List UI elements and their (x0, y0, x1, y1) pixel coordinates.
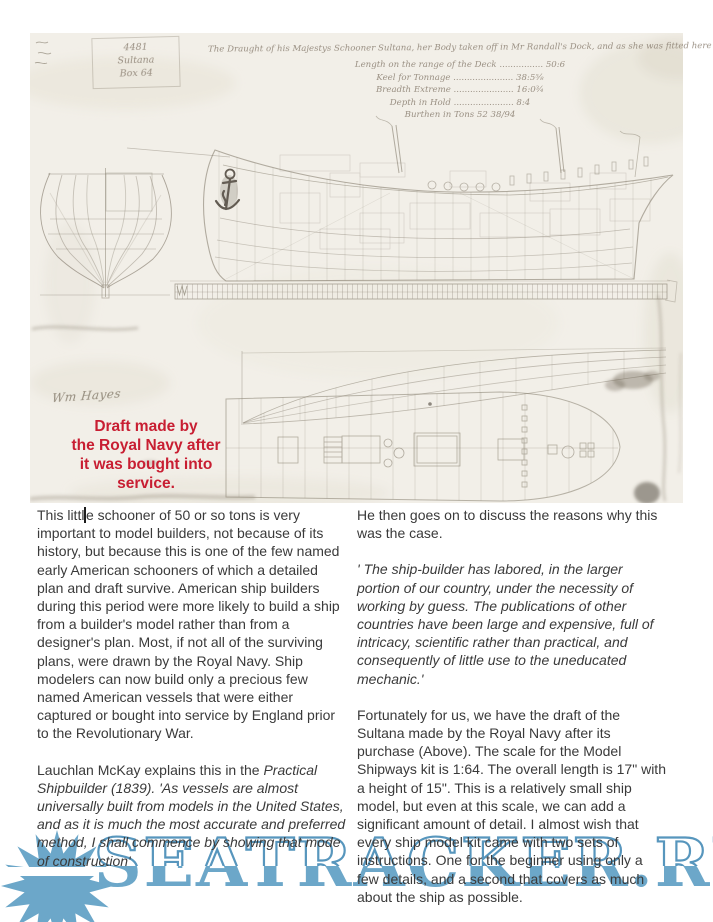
figure-caption: Draft made by the Royal Navy after it wa… (60, 417, 232, 493)
ship-draft-scan: 4481 Sultana Box 64 The Draught of his M… (30, 33, 683, 503)
caption-line: service. (60, 474, 232, 493)
deck-plan (226, 392, 620, 502)
paragraph-mckay-quote: Lauchlan McKay explains this in the Prac… (37, 761, 348, 870)
dimension-line: Burthen in Tons 52 38/94 (315, 109, 605, 122)
margin-scribble (35, 42, 51, 64)
paragraph-shipbuilder-quote: ' The ship-builder has labored, in the l… (357, 560, 668, 687)
dimension-line: Length on the range of the Deck ........… (315, 59, 605, 72)
dimension-line: Breadth Extreme ...................... 1… (315, 84, 605, 97)
caption-line: Draft made by (60, 417, 232, 436)
magazine-page: 4481 Sultana Box 64 The Draught of his M… (0, 0, 713, 922)
article-right-column: He then goes on to discuss the reasons w… (357, 506, 668, 922)
handwritten-dimension-list: Length on the range of the Deck ........… (315, 59, 605, 122)
article-left-column: This little schooner of 50 or so tons is… (37, 506, 348, 888)
caption-line: it was bought into (60, 455, 232, 474)
paragraph-text: e schooner of 50 or so tons is very impo… (37, 507, 340, 741)
paragraph-text: This littl (37, 507, 84, 523)
corner-label-line: Box 64 (93, 66, 179, 81)
archive-corner-label: 4481 Sultana Box 64 (91, 36, 180, 89)
paragraph-text: Lauchlan McKay explains this in the (37, 762, 263, 778)
caption-line: the Royal Navy after (60, 436, 232, 455)
sheer-plan (127, 116, 675, 282)
dimension-line: Keel for Tonnage ...................... … (315, 72, 605, 85)
paragraph-intro: This little schooner of 50 or so tons is… (37, 506, 348, 743)
paragraph-reasons: He then goes on to discuss the reasons w… (357, 506, 668, 542)
dimension-line: Depth in Hold ...................... 8:4 (315, 97, 605, 110)
paragraph-model-kit: Fortunately for us, we have the draft of… (357, 706, 668, 906)
